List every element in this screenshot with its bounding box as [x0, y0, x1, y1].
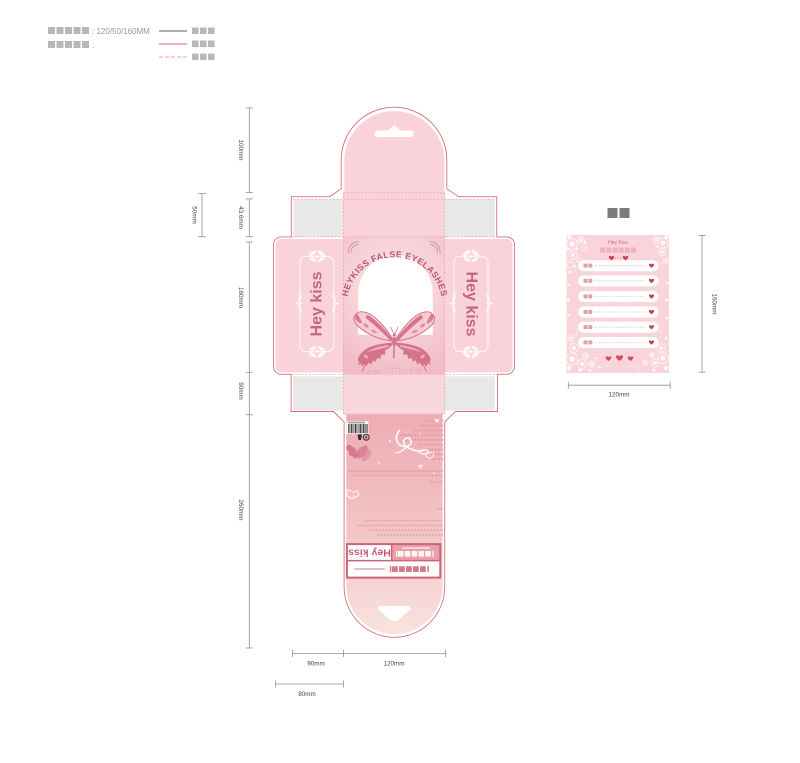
svg-text:90mm: 90mm: [237, 382, 244, 400]
svg-text:100mm: 100mm: [237, 140, 244, 161]
svg-text::: :: [92, 41, 94, 50]
svg-text:: 120/50/160MM: : 120/50/160MM: [92, 27, 150, 36]
svg-text:160mm: 160mm: [237, 287, 244, 308]
svg-text:50mm: 50mm: [191, 206, 198, 224]
svg-text:Hey Kiss: Hey Kiss: [608, 240, 628, 246]
svg-text:Hey kiss: Hey kiss: [309, 271, 326, 336]
svg-text:Hey kiss: Hey kiss: [463, 272, 480, 337]
svg-text:43.6mm: 43.6mm: [237, 206, 244, 229]
svg-text:Hey kiss: Hey kiss: [348, 547, 391, 559]
svg-text:120mm: 120mm: [609, 392, 630, 399]
svg-text:80mm: 80mm: [298, 691, 316, 698]
svg-text:260mm: 260mm: [237, 500, 244, 521]
svg-text:160mm: 160mm: [711, 294, 718, 315]
svg-text:120mm: 120mm: [384, 661, 405, 668]
svg-text:90mm: 90mm: [307, 661, 325, 668]
